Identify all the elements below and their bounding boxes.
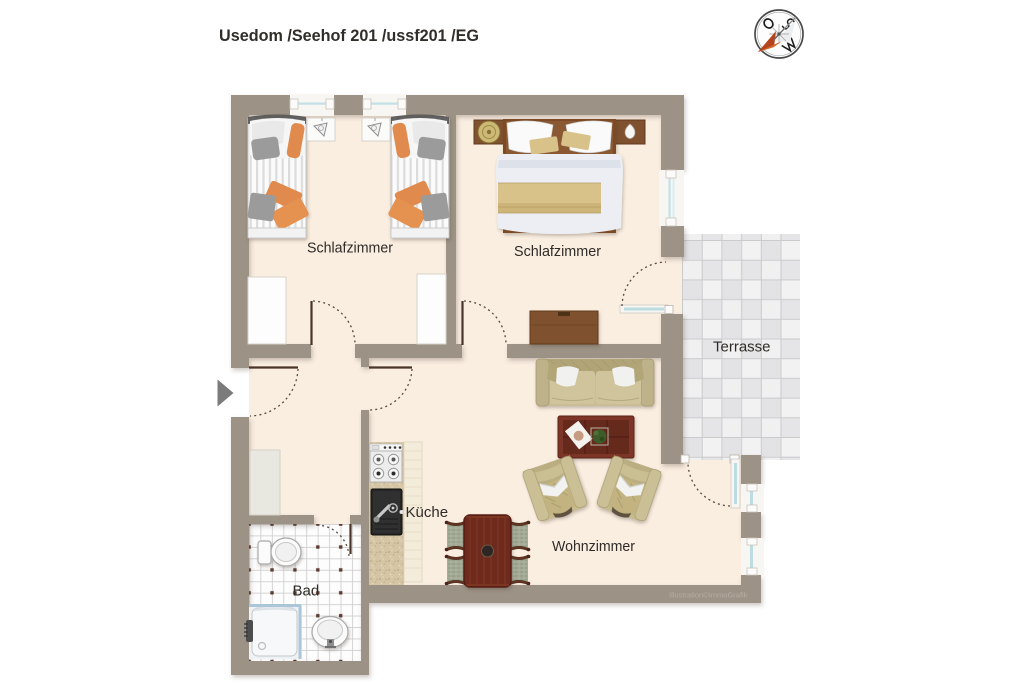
- svg-text:Schlafzimmer: Schlafzimmer: [514, 243, 601, 260]
- svg-text:Küche: Küche: [406, 504, 449, 521]
- svg-text:Bad: Bad: [293, 583, 320, 600]
- svg-text:Terrasse: Terrasse: [713, 339, 771, 356]
- svg-text:Schlafzimmer: Schlafzimmer: [307, 240, 393, 257]
- svg-text:Usedom /Seehof 201 /ussf201 /E: Usedom /Seehof 201 /ussf201 /EG: [219, 26, 479, 45]
- svg-text:Illustration©ImmoGrafik: Illustration©ImmoGrafik: [669, 591, 748, 600]
- svg-text:Wohnzimmer: Wohnzimmer: [552, 538, 635, 555]
